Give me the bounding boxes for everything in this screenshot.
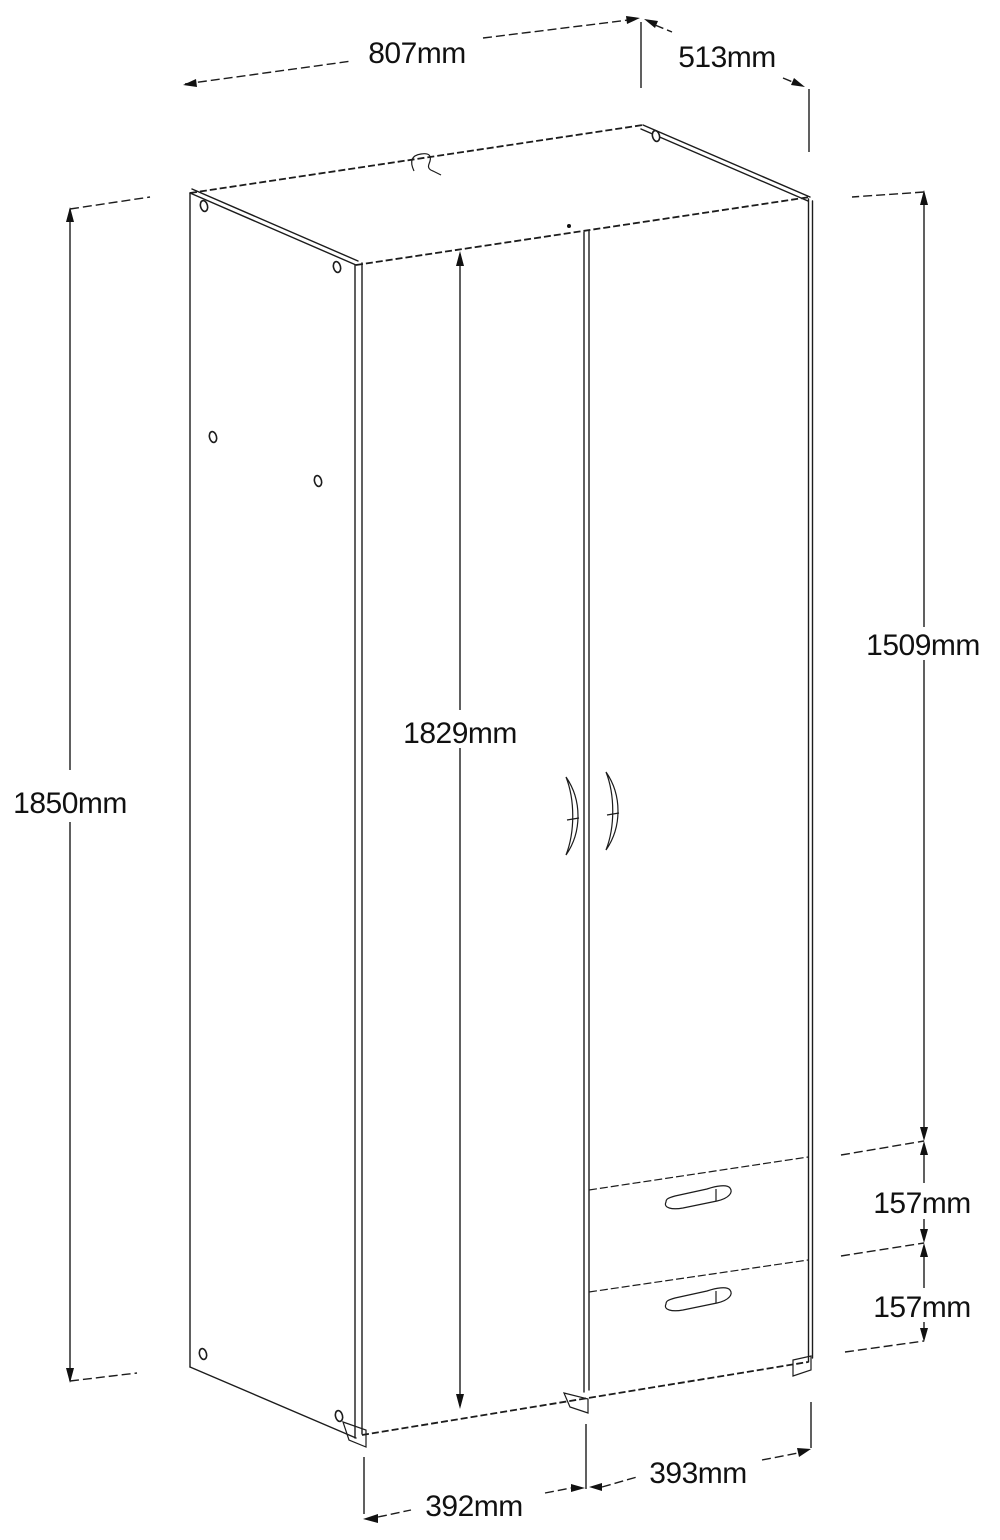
dim-label-top-width: 807mm [368,37,466,70]
dimension-drawer1-height: 157mm [841,1127,971,1229]
arrowhead [363,1514,378,1523]
top-back-edge [190,125,643,193]
screw-hole [332,261,341,273]
screw-hole [334,1410,343,1422]
arrowhead [920,1127,928,1141]
foot-middle [564,1393,588,1413]
drawer1-top-edge [589,1157,808,1190]
arrowhead [797,1448,811,1457]
dimension-drawer2-height: 157mm [841,1229,971,1352]
arrowhead [920,1328,928,1342]
screw-hole [208,431,217,443]
dim-label-door-height: 1829mm [403,717,517,750]
top-left-edge [190,193,356,265]
right-door-handle [606,772,618,850]
dimension-overall-height: 1850mm [13,197,150,1383]
dim-label-drawer2-height: 157mm [873,1291,971,1324]
wardrobe-outline [190,125,813,1447]
arrowhead [571,1484,585,1492]
dimension-right-door-width: 393mm [589,1402,811,1491]
dimension-top-width: 807mm [183,16,641,88]
arrowhead [920,1141,928,1155]
dim-label-overall-height: 1850mm [13,787,127,820]
top-front-edge [356,197,810,265]
top-left-edge-inner [192,189,358,261]
arrowhead [456,1394,464,1409]
screw-hole [199,200,208,212]
dimension-left-door-width: 392mm [363,1424,586,1523]
divider-top-mark [567,224,571,228]
dimension-door-height: 1829mm [403,251,517,1409]
technical-drawing-page: 807mm 513mm 1850mm 1829mm 1509mm [0,0,1000,1540]
screw-hole [198,1348,207,1360]
arrowhead [183,79,197,87]
dimension-upper-section-height: 1509mm [852,190,980,1128]
top-right-edge-inner [641,129,808,201]
arrowhead [920,1243,928,1257]
wardrobe-dimension-diagram: 807mm 513mm 1850mm 1829mm 1509mm [0,0,1000,1540]
arrowhead [589,1483,602,1491]
dim-label-left-door-width: 392mm [425,1490,523,1523]
arrowhead [791,78,805,87]
dim-label-right-door-width: 393mm [649,1457,747,1490]
screw-hole [313,475,322,487]
arrowhead [920,1229,928,1243]
dim-label-top-depth: 513mm [678,41,776,74]
drawer2-top-edge [589,1260,808,1292]
dim-label-upper-section-height: 1509mm [866,629,980,662]
bottom-left-edge [190,1367,356,1438]
arrowhead [456,251,464,266]
cam-hook-icon [412,154,441,175]
dim-label-drawer1-height: 157mm [873,1187,971,1220]
dimension-top-depth: 513mm [644,19,809,152]
drawer1-handle [665,1186,731,1209]
drawer2-handle [665,1288,731,1311]
left-door-handle [566,777,578,855]
arrowhead [626,16,640,24]
arrowhead [644,19,658,28]
top-right-edge [643,125,810,197]
